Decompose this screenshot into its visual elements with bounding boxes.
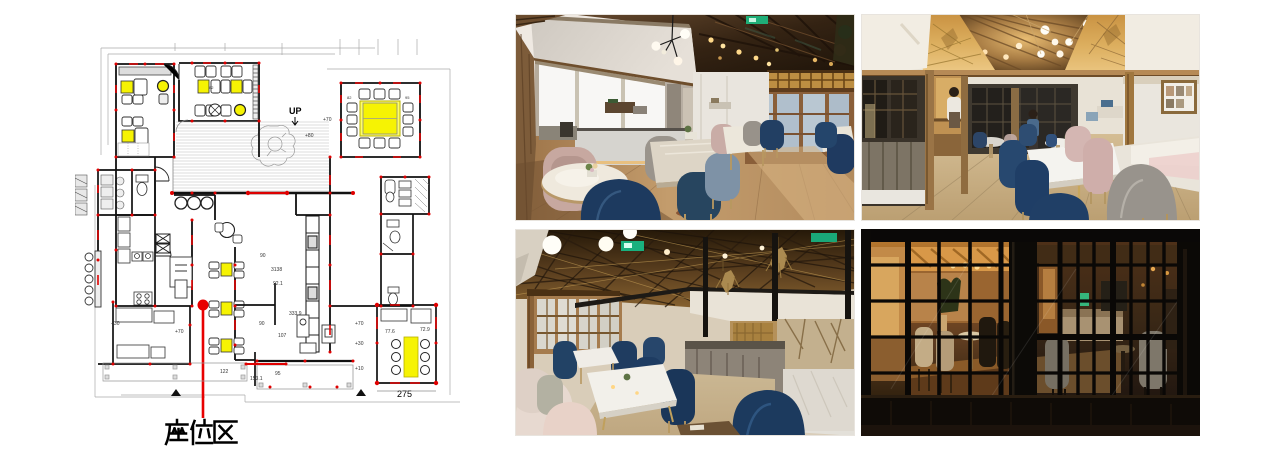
svg-text:UP: UP	[289, 106, 302, 116]
svg-text:92.1: 92.1	[273, 281, 283, 287]
svg-text:90: 90	[259, 321, 265, 327]
svg-text:77.6: 77.6	[385, 329, 395, 335]
svg-text:72.9: 72.9	[420, 327, 430, 333]
svg-text:82: 82	[209, 85, 214, 90]
svg-text:95: 95	[275, 371, 281, 377]
svg-text:+70: +70	[355, 321, 364, 327]
svg-text:+30: +30	[111, 321, 120, 327]
svg-text:275: 275	[397, 389, 412, 399]
svg-text:90: 90	[260, 253, 266, 259]
svg-text:+70: +70	[323, 117, 332, 123]
svg-text:3138: 3138	[271, 267, 282, 273]
svg-text:153.1: 153.1	[250, 376, 263, 382]
svg-text:+30: +30	[355, 341, 364, 347]
svg-text:107: 107	[278, 333, 287, 339]
svg-text:82: 82	[347, 95, 352, 100]
svg-text:122: 122	[220, 369, 229, 375]
svg-text:+10: +10	[355, 366, 364, 372]
svg-text:+70: +70	[175, 329, 184, 335]
svg-text:+80: +80	[305, 133, 314, 139]
svg-text:333.9: 333.9	[289, 311, 302, 317]
svg-text:95: 95	[405, 95, 410, 100]
